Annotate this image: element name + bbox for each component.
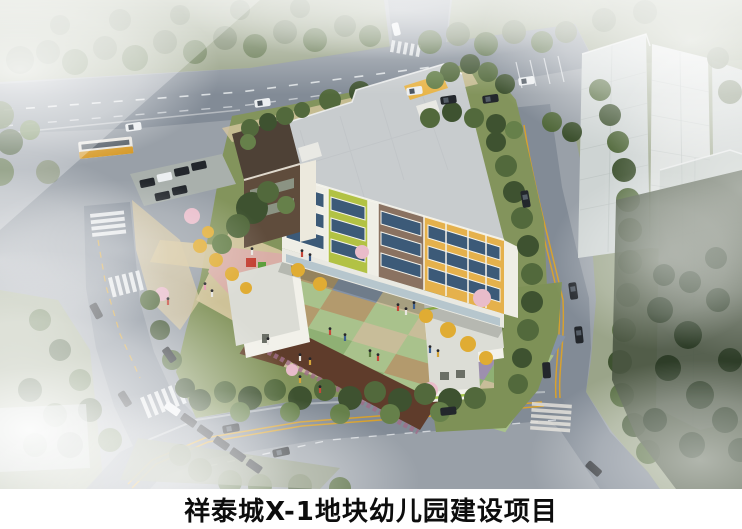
car <box>440 406 457 416</box>
stair-tower <box>300 160 316 242</box>
car <box>542 362 551 379</box>
caption-bar: 祥泰城X-1地块幼儿园建设项目 <box>0 489 742 529</box>
rendering-page: 祥泰城X-1地块幼儿园建设项目 <box>0 0 742 529</box>
caption-text: 祥泰城X-1地块幼儿园建设项目 <box>184 491 558 528</box>
side-wall <box>504 240 518 318</box>
aerial-rendering-image <box>0 0 742 489</box>
